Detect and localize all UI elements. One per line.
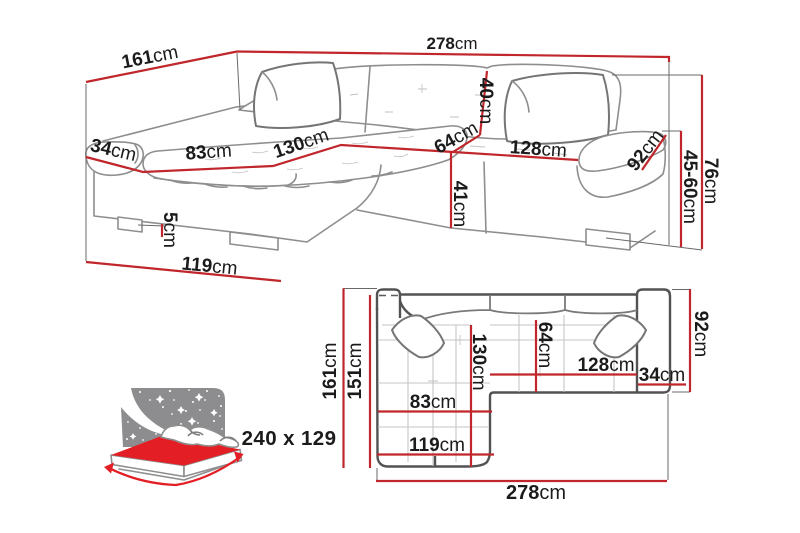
svg-text:34cm: 34cm xyxy=(639,365,685,386)
svg-text:40cm: 40cm xyxy=(475,78,496,124)
svg-text:240 x 129: 240 x 129 xyxy=(242,427,337,450)
svg-text:45-60cm: 45-60cm xyxy=(679,150,700,224)
svg-text:128cm: 128cm xyxy=(509,137,567,162)
svg-text:41cm: 41cm xyxy=(449,181,470,227)
svg-text:151cm: 151cm xyxy=(345,342,366,399)
svg-text:161cm: 161cm xyxy=(320,342,341,399)
svg-text:278cm: 278cm xyxy=(506,482,566,504)
svg-text:278cm: 278cm xyxy=(426,34,477,53)
svg-text:128cm: 128cm xyxy=(577,355,634,376)
svg-text:5cm: 5cm xyxy=(159,212,180,248)
svg-text:119cm: 119cm xyxy=(409,435,465,456)
svg-text:92cm: 92cm xyxy=(690,311,711,357)
svg-text:83cm: 83cm xyxy=(410,392,456,413)
svg-text:64cm: 64cm xyxy=(534,322,555,368)
svg-text:130cm: 130cm xyxy=(468,333,489,390)
svg-text:76cm: 76cm xyxy=(700,158,721,204)
svg-text:83cm: 83cm xyxy=(185,140,233,164)
